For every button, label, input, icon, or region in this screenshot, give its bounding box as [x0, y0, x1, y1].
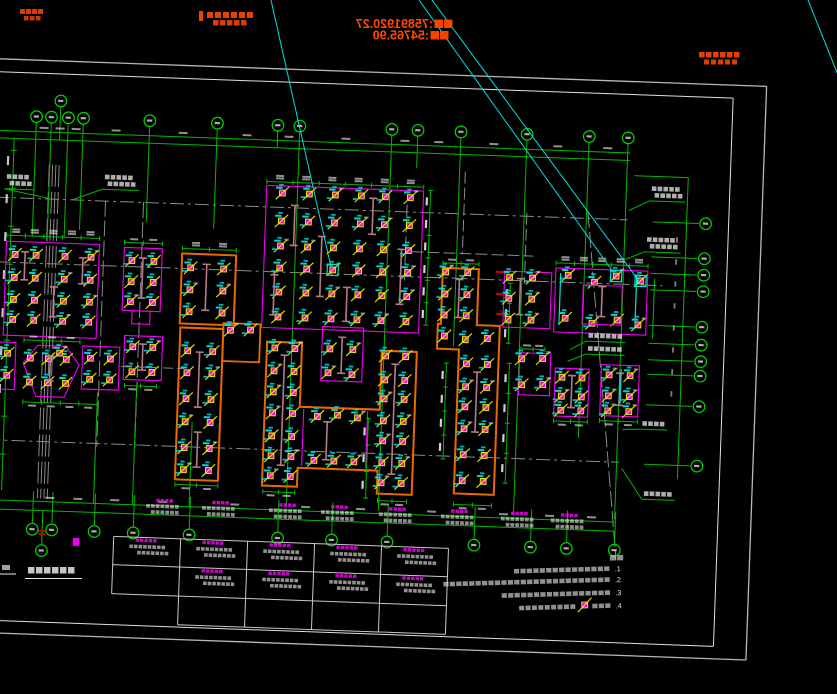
svg-text:.2: .2 — [615, 575, 621, 584]
svg-text:.3: .3 — [615, 588, 621, 597]
svg-text:.4: .4 — [616, 601, 622, 610]
svg-text::54765.90: :54765.90 — [373, 29, 429, 43]
svg-text:.1: .1 — [615, 564, 621, 573]
